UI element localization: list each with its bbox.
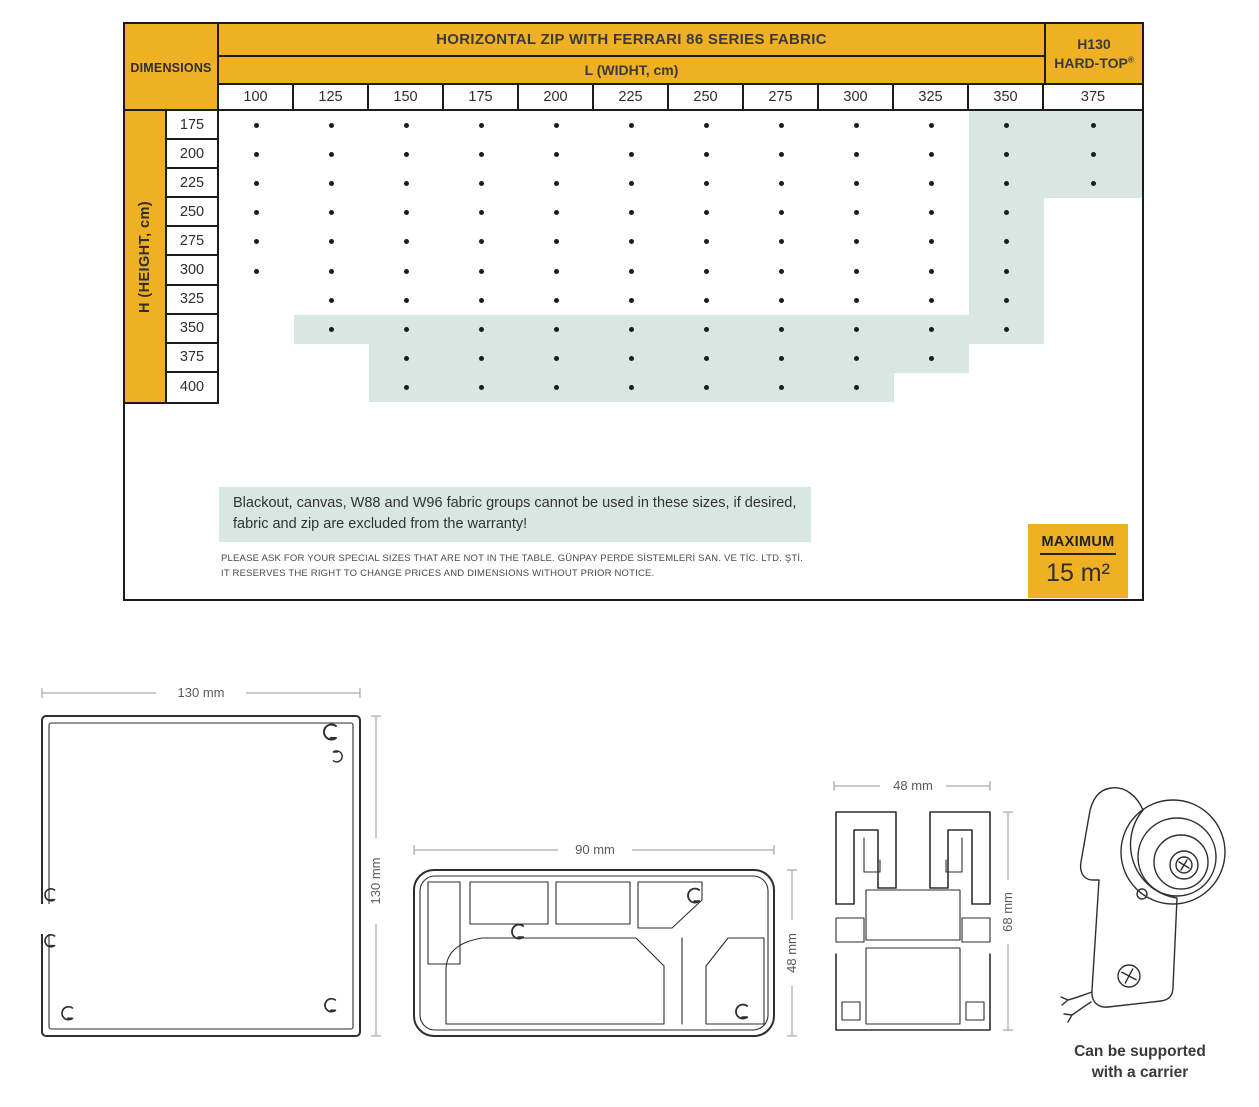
row-header-250: 250 (167, 198, 217, 227)
size-cell-200x175 (519, 111, 594, 140)
size-cell-325x275 (894, 227, 969, 256)
size-cell-175x375 (444, 344, 519, 373)
size-cell-150x250 (369, 198, 444, 227)
availability-dot (779, 152, 784, 157)
availability-dot (929, 327, 934, 332)
size-cell-200x200 (519, 140, 594, 169)
size-cell-125x175 (294, 111, 369, 140)
availability-dot (1091, 123, 1096, 128)
availability-dot (479, 181, 484, 186)
size-cell-150x325 (369, 286, 444, 315)
availability-dot (554, 298, 559, 303)
size-cell-225x300 (594, 256, 669, 285)
size-cell-325x225 (894, 169, 969, 198)
size-cell-300x350 (819, 315, 894, 344)
availability-dot (404, 385, 409, 390)
fine-print: PLEASE ASK FOR YOUR SPECIAL SIZES THAT A… (221, 551, 861, 581)
size-cell-275x225 (744, 169, 819, 198)
size-cell-100x375 (219, 344, 294, 373)
availability-dot (704, 327, 709, 332)
maximum-badge: MAXIMUM 15 m² (1028, 524, 1128, 598)
size-cell-100x175 (219, 111, 294, 140)
size-cell-150x350 (369, 315, 444, 344)
motor-caption: Can be supported with a carrier (1030, 1042, 1250, 1084)
size-cell-350x300 (969, 256, 1044, 285)
availability-dot (929, 181, 934, 186)
availability-dot (854, 327, 859, 332)
size-cell-300x325 (819, 286, 894, 315)
availability-dot (404, 356, 409, 361)
size-cell-100x200 (219, 140, 294, 169)
size-cell-175x250 (444, 198, 519, 227)
availability-dot (554, 181, 559, 186)
size-cell-125x300 (294, 256, 369, 285)
availability-dot (929, 152, 934, 157)
availability-dot (854, 181, 859, 186)
size-cell-325x300 (894, 256, 969, 285)
availability-dot (479, 239, 484, 244)
availability-dot (554, 152, 559, 157)
availability-dot (554, 327, 559, 332)
fine-print-line1: PLEASE ASK FOR YOUR SPECIAL SIZES THAT A… (221, 553, 803, 564)
profile-drawing-90x48: 90 mm 48 mm (400, 838, 810, 1053)
availability-dot (404, 269, 409, 274)
availability-dot (404, 239, 409, 244)
availability-dot (329, 239, 334, 244)
availability-dot (779, 123, 784, 128)
size-cell-250x300 (669, 256, 744, 285)
availability-dot (854, 356, 859, 361)
size-cell-375x250 (1044, 198, 1142, 227)
column-header-275: 275 (744, 85, 819, 109)
width-dimension-label: 130 mm (178, 685, 225, 700)
availability-dot (629, 210, 634, 215)
availability-dot (704, 181, 709, 186)
height-axis-label: H (HEIGHT, cm) (137, 201, 153, 313)
row-header-175: 175 (167, 111, 217, 140)
size-cell-125x225 (294, 169, 369, 198)
size-cell-250x350 (669, 315, 744, 344)
availability-dot (1004, 123, 1009, 128)
size-cell-350x400 (969, 373, 1044, 402)
size-cell-275x300 (744, 256, 819, 285)
availability-dot (704, 239, 709, 244)
column-header-125: 125 (294, 85, 369, 109)
availability-dot (329, 152, 334, 157)
size-cell-175x225 (444, 169, 519, 198)
availability-dot (329, 210, 334, 215)
maximum-label: MAXIMUM (1040, 534, 1117, 555)
size-cell-375x375 (1044, 344, 1142, 373)
column-header-225: 225 (594, 85, 669, 109)
size-cell-350x350 (969, 315, 1044, 344)
size-cell-250x250 (669, 198, 744, 227)
height-dimension-label: 48 mm (784, 933, 799, 973)
size-cell-300x250 (819, 198, 894, 227)
size-cell-325x250 (894, 198, 969, 227)
size-cell-275x175 (744, 111, 819, 140)
profile-inner-wall (49, 723, 353, 1029)
fine-print-line2: IT RESERVES THE RIGHT TO CHANGE PRICES A… (221, 568, 654, 579)
size-cell-250x400 (669, 373, 744, 402)
motor-drawing (1045, 778, 1245, 1040)
availability-dot (704, 356, 709, 361)
availability-dot (254, 181, 259, 186)
height-dimension-label: 130 mm (368, 858, 383, 905)
availability-dot (629, 298, 634, 303)
availability-dot (254, 210, 259, 215)
availability-dot (1004, 269, 1009, 274)
size-cell-325x175 (894, 111, 969, 140)
size-cell-175x325 (444, 286, 519, 315)
availability-dot (254, 123, 259, 128)
size-cell-175x350 (444, 315, 519, 344)
column-header-325: 325 (894, 85, 969, 109)
size-cell-275x275 (744, 227, 819, 256)
size-cell-150x300 (369, 256, 444, 285)
size-cell-300x225 (819, 169, 894, 198)
hardtop-header: H130 HARD-TOP® (1044, 24, 1142, 85)
size-cell-375x400 (1044, 373, 1142, 402)
fabric-warning-note: Blackout, canvas, W88 and W96 fabric gro… (219, 487, 811, 542)
availability-dot (404, 152, 409, 157)
size-cell-200x300 (519, 256, 594, 285)
size-cell-100x300 (219, 256, 294, 285)
availability-dot (479, 356, 484, 361)
availability-dot (479, 123, 484, 128)
size-cell-225x375 (594, 344, 669, 373)
spec-sheet-page: DIMENSIONS HORIZONTAL ZIP WITH FERRARI 8… (0, 0, 1259, 1107)
row-header-350: 350 (167, 315, 217, 344)
profile-outline (836, 812, 990, 1030)
size-cell-150x375 (369, 344, 444, 373)
size-cell-350x325 (969, 286, 1044, 315)
size-table: DIMENSIONS HORIZONTAL ZIP WITH FERRARI 8… (123, 22, 1144, 601)
availability-dot (779, 298, 784, 303)
availability-dot (554, 385, 559, 390)
column-header-200: 200 (519, 85, 594, 109)
availability-dot (629, 327, 634, 332)
availability-dot (929, 356, 934, 361)
size-cell-150x225 (369, 169, 444, 198)
availability-dot (629, 181, 634, 186)
availability-dot (929, 210, 934, 215)
availability-dot (854, 298, 859, 303)
warning-line2: fabric and zip are excluded from the war… (233, 516, 527, 532)
size-cell-375x225 (1044, 169, 1142, 198)
size-cell-225x250 (594, 198, 669, 227)
availability-dot (629, 239, 634, 244)
row-header-225: 225 (167, 169, 217, 198)
availability-dot (629, 123, 634, 128)
width-column-headers: 100125150175200225250275300325350375 (219, 85, 1142, 111)
availability-dot (929, 239, 934, 244)
availability-dot (404, 327, 409, 332)
availability-dot (779, 356, 784, 361)
maximum-value: 15 m² (1046, 559, 1110, 588)
availability-dot (779, 327, 784, 332)
availability-dot (1004, 152, 1009, 157)
size-cell-300x275 (819, 227, 894, 256)
size-cell-225x325 (594, 286, 669, 315)
size-cell-175x300 (444, 256, 519, 285)
size-cell-250x325 (669, 286, 744, 315)
size-cell-275x200 (744, 140, 819, 169)
size-cell-275x325 (744, 286, 819, 315)
availability-dot (1004, 298, 1009, 303)
size-cell-275x400 (744, 373, 819, 402)
availability-matrix (219, 111, 1142, 402)
row-header-325: 325 (167, 286, 217, 315)
size-cell-125x400 (294, 373, 369, 402)
size-cell-275x250 (744, 198, 819, 227)
availability-dot (1004, 181, 1009, 186)
availability-dot (779, 181, 784, 186)
size-cell-225x175 (594, 111, 669, 140)
size-cell-225x400 (594, 373, 669, 402)
size-cell-175x275 (444, 227, 519, 256)
width-axis-label: L (WIDHT, cm) (219, 57, 1044, 85)
height-dimension-label: 68 mm (1000, 892, 1015, 932)
availability-dot (554, 210, 559, 215)
height-row-headers: 175200225250275300325350375400 (167, 109, 219, 404)
size-cell-325x350 (894, 315, 969, 344)
availability-dot (704, 269, 709, 274)
size-cell-225x225 (594, 169, 669, 198)
size-cell-250x375 (669, 344, 744, 373)
availability-dot (779, 269, 784, 274)
size-cell-225x350 (594, 315, 669, 344)
size-cell-375x350 (1044, 315, 1142, 344)
size-cell-325x200 (894, 140, 969, 169)
size-cell-200x225 (519, 169, 594, 198)
size-cell-350x225 (969, 169, 1044, 198)
size-cell-325x400 (894, 373, 969, 402)
availability-dot (854, 269, 859, 274)
size-cell-175x200 (444, 140, 519, 169)
size-cell-200x350 (519, 315, 594, 344)
availability-dot (629, 152, 634, 157)
availability-dot (479, 210, 484, 215)
size-cell-125x250 (294, 198, 369, 227)
motor-outline (1061, 788, 1225, 1022)
availability-dot (854, 152, 859, 157)
size-cell-250x225 (669, 169, 744, 198)
size-cell-350x175 (969, 111, 1044, 140)
column-header-100: 100 (219, 85, 294, 109)
column-header-250: 250 (669, 85, 744, 109)
width-dimension-label: 90 mm (575, 842, 615, 857)
size-cell-125x325 (294, 286, 369, 315)
size-cell-125x350 (294, 315, 369, 344)
availability-dot (479, 269, 484, 274)
size-cell-225x275 (594, 227, 669, 256)
size-cell-200x275 (519, 227, 594, 256)
availability-dot (779, 210, 784, 215)
availability-dot (329, 269, 334, 274)
size-cell-100x225 (219, 169, 294, 198)
availability-dot (479, 152, 484, 157)
size-cell-150x200 (369, 140, 444, 169)
size-cell-100x400 (219, 373, 294, 402)
row-header-400: 400 (167, 373, 217, 402)
size-cell-300x400 (819, 373, 894, 402)
size-cell-225x200 (594, 140, 669, 169)
size-cell-300x175 (819, 111, 894, 140)
availability-dot (704, 152, 709, 157)
profile-outer-wall (42, 716, 360, 1036)
row-header-200: 200 (167, 140, 217, 169)
row-header-275: 275 (167, 227, 217, 256)
size-cell-125x275 (294, 227, 369, 256)
size-cell-325x325 (894, 286, 969, 315)
availability-dot (554, 123, 559, 128)
size-cell-100x250 (219, 198, 294, 227)
size-cell-100x350 (219, 315, 294, 344)
availability-dot (404, 298, 409, 303)
availability-dot (854, 385, 859, 390)
availability-dot (479, 327, 484, 332)
size-cell-375x275 (1044, 227, 1142, 256)
size-cell-200x375 (519, 344, 594, 373)
availability-dot (704, 298, 709, 303)
wall-gap (40, 904, 51, 934)
profile-drawing-48x68: 48 mm 68 mm (818, 772, 1028, 1047)
size-cell-200x325 (519, 286, 594, 315)
availability-dot (254, 239, 259, 244)
size-cell-275x350 (744, 315, 819, 344)
registered-mark: ® (1128, 55, 1134, 64)
availability-dot (854, 123, 859, 128)
warning-line1: Blackout, canvas, W88 and W96 fabric gro… (233, 495, 796, 511)
size-cell-300x200 (819, 140, 894, 169)
availability-dot (404, 123, 409, 128)
profile-chambers (428, 882, 764, 1024)
availability-dot (479, 298, 484, 303)
motor-caption-line1: Can be supported (1074, 1043, 1206, 1060)
size-cell-350x200 (969, 140, 1044, 169)
row-header-375: 375 (167, 344, 217, 373)
size-cell-100x275 (219, 227, 294, 256)
corner-screw-ports (45, 725, 342, 1020)
size-cell-100x325 (219, 286, 294, 315)
size-cell-275x375 (744, 344, 819, 373)
availability-dot (1004, 210, 1009, 215)
availability-dot (554, 356, 559, 361)
size-cell-125x200 (294, 140, 369, 169)
availability-dot (254, 152, 259, 157)
size-cell-200x400 (519, 373, 594, 402)
availability-dot (554, 239, 559, 244)
size-cell-350x250 (969, 198, 1044, 227)
column-header-150: 150 (369, 85, 444, 109)
table-title: HORIZONTAL ZIP WITH FERRARI 86 SERIES FA… (219, 24, 1044, 57)
availability-dot (329, 298, 334, 303)
size-cell-300x300 (819, 256, 894, 285)
availability-dot (929, 269, 934, 274)
availability-dot (1004, 239, 1009, 244)
size-cell-375x175 (1044, 111, 1142, 140)
availability-dot (854, 210, 859, 215)
size-cell-375x325 (1044, 286, 1142, 315)
size-cell-150x175 (369, 111, 444, 140)
availability-dot (404, 181, 409, 186)
size-cell-300x375 (819, 344, 894, 373)
availability-dot (479, 385, 484, 390)
size-cell-350x375 (969, 344, 1044, 373)
column-header-300: 300 (819, 85, 894, 109)
availability-dot (554, 269, 559, 274)
size-cell-250x175 (669, 111, 744, 140)
availability-dot (854, 239, 859, 244)
availability-dot (404, 210, 409, 215)
availability-dot (779, 385, 784, 390)
availability-dot (629, 269, 634, 274)
row-header-300: 300 (167, 256, 217, 285)
height-axis-strip: H (HEIGHT, cm) (125, 109, 167, 404)
availability-dot (1091, 181, 1096, 186)
motor-caption-line2: with a carrier (1092, 1064, 1189, 1081)
availability-dot (329, 181, 334, 186)
availability-dot (254, 269, 259, 274)
size-cell-375x300 (1044, 256, 1142, 285)
hardtop-line2: HARD-TOP (1054, 55, 1128, 71)
hardtop-line1: H130 (1077, 36, 1110, 52)
availability-dot (704, 210, 709, 215)
availability-dot (779, 239, 784, 244)
availability-dot (629, 356, 634, 361)
availability-dot (329, 123, 334, 128)
size-cell-375x200 (1044, 140, 1142, 169)
availability-dot (704, 385, 709, 390)
availability-dot (329, 327, 334, 332)
availability-dot (629, 385, 634, 390)
size-cell-150x400 (369, 373, 444, 402)
availability-dot (929, 123, 934, 128)
column-header-375: 375 (1044, 85, 1142, 109)
column-header-175: 175 (444, 85, 519, 109)
size-cell-125x375 (294, 344, 369, 373)
width-dimension-label: 48 mm (893, 778, 933, 793)
availability-dot (929, 298, 934, 303)
column-header-350: 350 (969, 85, 1044, 109)
profile-drawing-130x130: 130 mm 130 mm (28, 678, 388, 1053)
availability-dot (1091, 152, 1096, 157)
size-cell-350x275 (969, 227, 1044, 256)
size-cell-325x375 (894, 344, 969, 373)
availability-dot (1004, 327, 1009, 332)
size-cell-200x250 (519, 198, 594, 227)
profile-outer-wall (414, 870, 774, 1036)
size-cell-150x275 (369, 227, 444, 256)
size-cell-250x275 (669, 227, 744, 256)
availability-dot (704, 123, 709, 128)
size-cell-250x200 (669, 140, 744, 169)
size-cell-175x175 (444, 111, 519, 140)
dimensions-corner-label: DIMENSIONS (125, 24, 219, 111)
size-cell-175x400 (444, 373, 519, 402)
